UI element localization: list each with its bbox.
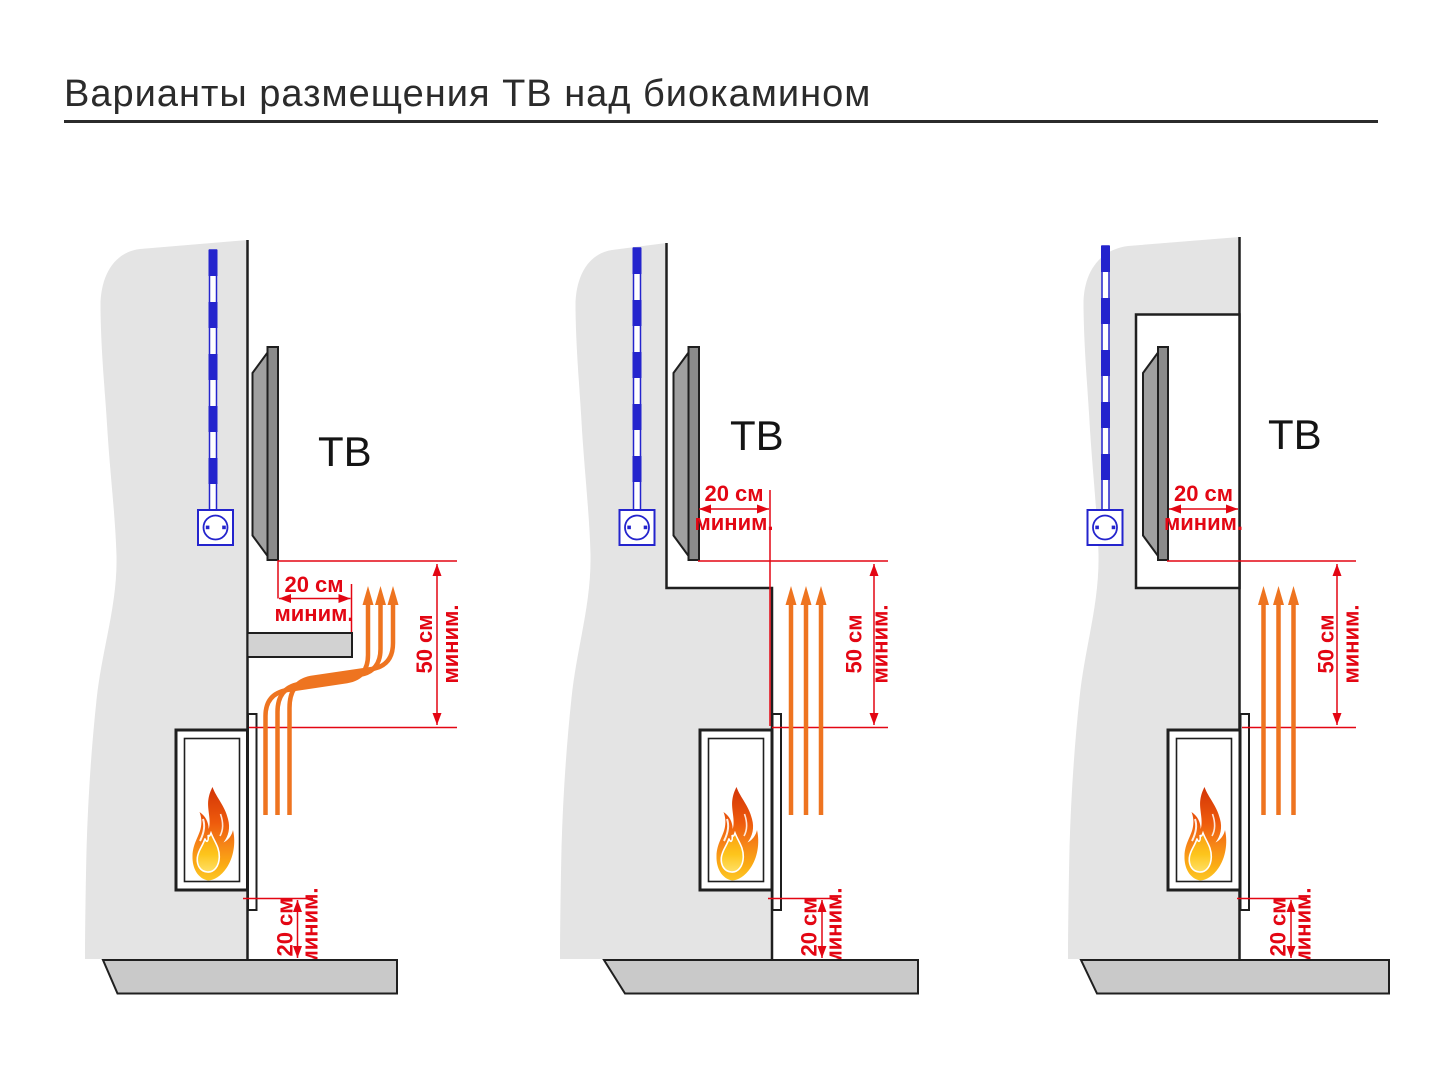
fireplace [700, 714, 781, 910]
power-outlet-icon [620, 510, 655, 545]
dimension-floor-value: 20 см [273, 897, 298, 956]
dimension-floor-qualifier: миним. [1291, 888, 1316, 967]
dimension-above-qualifier: миним. [438, 605, 463, 684]
dimension-above-qualifier: миним. [868, 605, 893, 684]
dimension-floor-qualifier: миним. [822, 888, 847, 967]
dimension-side-value: 20 см [704, 481, 763, 506]
dimension-side-qualifier: миним. [695, 510, 774, 535]
dimension-floor-value: 20 см [797, 897, 822, 956]
dimension-floor-value: 20 см [1266, 897, 1291, 956]
diagram-tv-in-wall-niche: ТВ 20 см миним. 50 см миним. [1068, 237, 1389, 994]
power-cable-icon [209, 250, 218, 510]
power-cable-icon [633, 248, 642, 510]
fireplace [1168, 714, 1249, 910]
power-outlet-icon [198, 510, 233, 545]
tv-side-view [253, 347, 279, 560]
mantel-shelf [248, 633, 353, 657]
tv-placement-infographic: Варианты размещения ТВ над биокамином ТВ [0, 0, 1440, 1080]
floor [1081, 960, 1389, 994]
diagram-tv-recessed-behind-fireplace-plane: ТВ 20 см миним. 50 см м [560, 243, 918, 994]
dimension-side-qualifier: миним. [275, 601, 354, 626]
power-cable-icon [1101, 246, 1110, 510]
fireplace-glass [773, 714, 782, 910]
power-outlet-icon [1088, 510, 1123, 545]
dimension-above-value: 50 см [412, 614, 437, 673]
dimension-above-value: 50 см [842, 614, 867, 673]
dimension-side-value: 20 см [1174, 481, 1233, 506]
dimension-above-value: 50 см [1314, 614, 1339, 673]
tv-label: ТВ [730, 412, 784, 459]
dimension-above-qualifier: миним. [1339, 605, 1364, 684]
fireplace-glass [248, 714, 257, 910]
dimension-floor-qualifier: миним. [298, 888, 323, 967]
tv-label: ТВ [1268, 411, 1322, 458]
diagram-tv-above-mantel-shelf: ТВ 20 см миним. 50 см м [85, 240, 463, 994]
fireplace [176, 714, 257, 910]
fireplace-glass [1241, 714, 1250, 910]
heat-flow-arrows [786, 586, 827, 815]
page-title: Варианты размещения ТВ над биокамином [64, 73, 871, 115]
dimension-side-value: 20 см [284, 572, 343, 597]
floor [604, 960, 918, 994]
heat-flow-arrows [1258, 586, 1299, 815]
floor [103, 960, 397, 994]
dimension-side-qualifier: миним. [1164, 510, 1243, 535]
tv-label: ТВ [318, 428, 372, 475]
